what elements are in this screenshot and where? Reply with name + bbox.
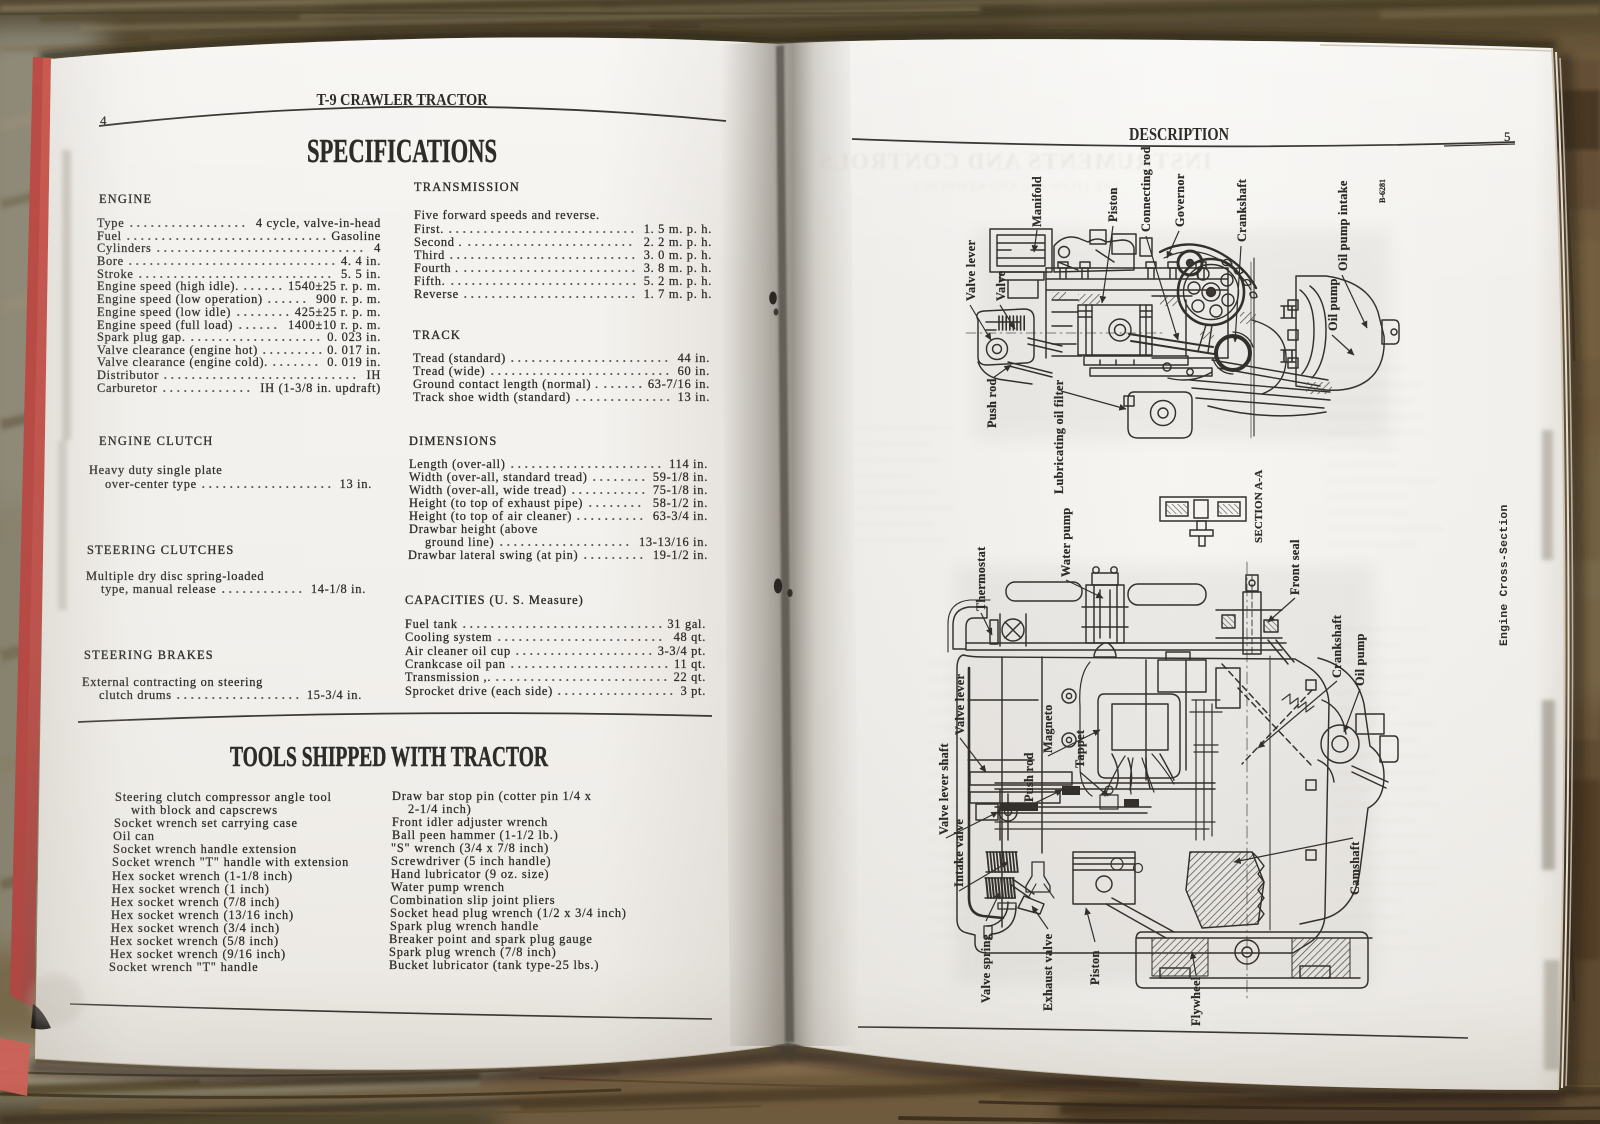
svg-text:Oil pump: Oil pump: [1326, 278, 1340, 331]
svg-text:Flywheel: Flywheel: [1189, 976, 1203, 1026]
svg-text:Connecting rod: Connecting rod: [1139, 146, 1153, 232]
svg-text:Oil pump: Oil pump: [1353, 633, 1367, 686]
svg-text:Exhaust valve: Exhaust valve: [1041, 933, 1055, 1011]
svg-text:DESCRIPTION: DESCRIPTION: [1129, 124, 1229, 144]
svg-text:Manifold: Manifold: [1030, 176, 1044, 227]
svg-text:Valve: Valve: [994, 270, 1008, 301]
svg-text:Tappet: Tappet: [1073, 729, 1087, 768]
svg-text:Piston: Piston: [1088, 950, 1102, 985]
svg-text:Piston: Piston: [1106, 187, 1120, 222]
svg-text:Oil pump intake: Oil pump intake: [1336, 180, 1350, 271]
svg-text:Lubricating oil filter: Lubricating oil filter: [1052, 379, 1066, 494]
svg-text:Magneto: Magneto: [1041, 704, 1055, 753]
svg-text:Camshaft: Camshaft: [1348, 841, 1362, 895]
svg-text:Valve spring: Valve spring: [979, 933, 993, 1003]
svg-text:Valve lever shaft: Valve lever shaft: [937, 743, 951, 835]
svg-text:Water pump: Water pump: [1059, 508, 1073, 577]
svg-text:SECTION A-A: SECTION A-A: [1253, 470, 1265, 543]
svg-text:Crankshaft: Crankshaft: [1235, 178, 1249, 242]
svg-text:THE LILIW ALL AND RESIDENCE: THE LILIW ALL AND RESIDENCE: [910, 179, 1120, 193]
svg-text:Crankshaft: Crankshaft: [1330, 614, 1344, 678]
svg-text:Governor: Governor: [1173, 173, 1187, 227]
svg-text:Front seal: Front seal: [1288, 539, 1302, 595]
svg-text:Valve lever: Valve lever: [964, 240, 978, 301]
svg-text:Push rod: Push rod: [985, 378, 999, 428]
svg-text:Thermostat: Thermostat: [974, 546, 988, 611]
svg-text:Push rod: Push rod: [1022, 752, 1036, 802]
svg-text:Engine Cross-Section: Engine Cross-Section: [1499, 504, 1511, 646]
svg-text:B-6281: B-6281: [1378, 179, 1387, 203]
svg-text:Valve lever: Valve lever: [953, 674, 967, 735]
